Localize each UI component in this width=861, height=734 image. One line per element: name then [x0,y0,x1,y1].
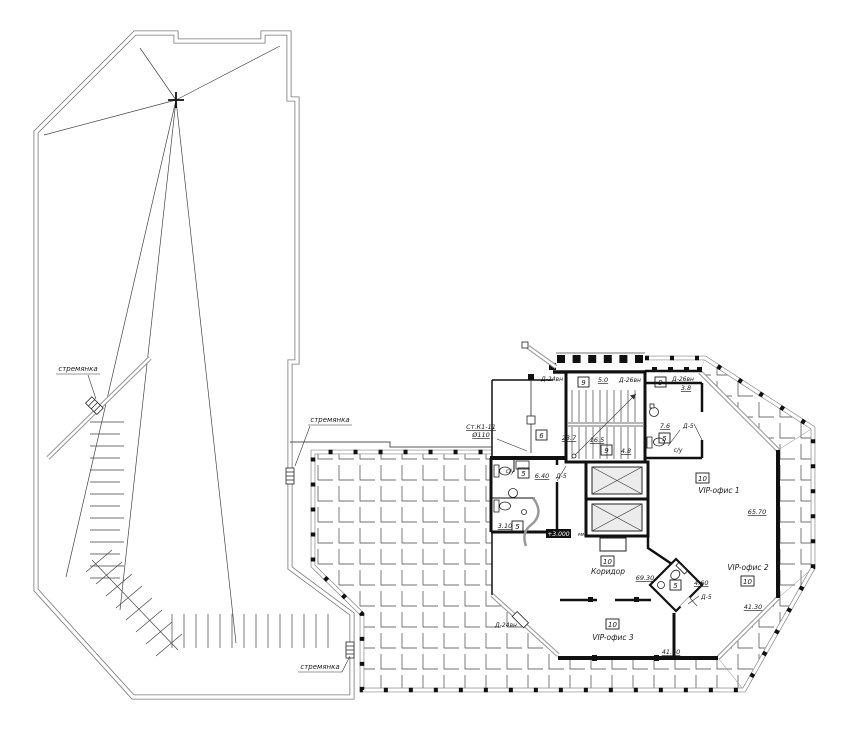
drain-label-line2: Ø110 [471,431,490,439]
vip2-name: VIP-офис 2 [727,563,769,572]
door-label-d24-top: Д-24вн [540,376,563,383]
corridor-area: 69.30 [636,574,655,582]
balc-right-area: 3.8 [681,384,691,392]
wc-main-sub-number: 5 [515,523,520,531]
mullion-post [592,655,597,661]
door-label-d26-left: Д-26вн [618,377,641,384]
ladder-label-3: стремянка [300,663,339,671]
vip3-area: 41.60 [662,648,681,656]
ladder-label-2: стремянка [310,416,349,424]
wc-top-number: 5 [662,435,667,443]
door-label-d24-bottom: Д-24вн [494,622,517,629]
wc-main-area: 6.40 [535,472,549,480]
vip1-number: 10 [698,475,707,483]
vip3-number: 10 [608,621,617,629]
door-label-d5-top: Д-5 [682,423,694,430]
wc-diamond-number: 5 [673,582,678,590]
wc-top-name: с/у [674,447,683,454]
wc-main-sub-area: 3.10 [498,522,512,530]
stair-small-area: 4.8 [621,447,631,455]
plan-canvas: стремянка стремянка стремянка [0,0,861,734]
corridor-name: Коридор [591,567,625,576]
corridor-number: 10 [603,558,612,566]
stair-number: 9 [604,447,609,455]
elevation-value: +3.000 [547,531,569,538]
floor-drain-icon [522,510,527,515]
column-post [634,597,639,602]
door-label-d26-right: Д-26вн [671,376,694,383]
wc-main-name: с/у [506,468,515,475]
room6-number: 6 [539,432,544,440]
drain-stack-icon [527,416,535,424]
column-post [588,597,593,602]
mullion-post [654,655,659,661]
ladder-label-1: стремянка [58,365,97,373]
ladder-icon [346,642,354,658]
balc-left-number: 9 [581,379,586,387]
vip1-area: 65.70 [748,508,767,516]
wc-diamond-area: 4.60 [694,579,708,587]
wc-main-number: 5 [521,470,526,478]
vip3-name: VIP-офис 3 [592,633,634,642]
vip1-name: VIP-офис 1 [698,486,739,495]
sink-icon [658,582,665,589]
ladder-icon [286,468,294,484]
stair-area: 16.5 [590,436,604,444]
room6-area: 23.7 [562,434,577,442]
balc-right-number: 9 [658,379,663,387]
drain-post [528,374,534,380]
balc-left-area: 5.0 [598,376,608,384]
floor-plan-drawing: стремянка стремянка стремянка [0,0,861,734]
elevation-units: мм [578,532,586,538]
wc-top-area: 7.6 [660,422,670,430]
sink-icon [650,408,659,417]
hatch-shaft [600,538,626,551]
door-label-d5-main: Д-5 [555,473,567,480]
vip2-number: 10 [743,578,752,586]
elevator-shaft-icon [586,462,648,536]
door-label-d5-diamond: Д-5 [700,594,712,601]
vip2-area: 41.30 [744,603,763,611]
drain-label-line1: Ст.К1-11 [466,423,496,431]
basin-icon [509,489,518,498]
